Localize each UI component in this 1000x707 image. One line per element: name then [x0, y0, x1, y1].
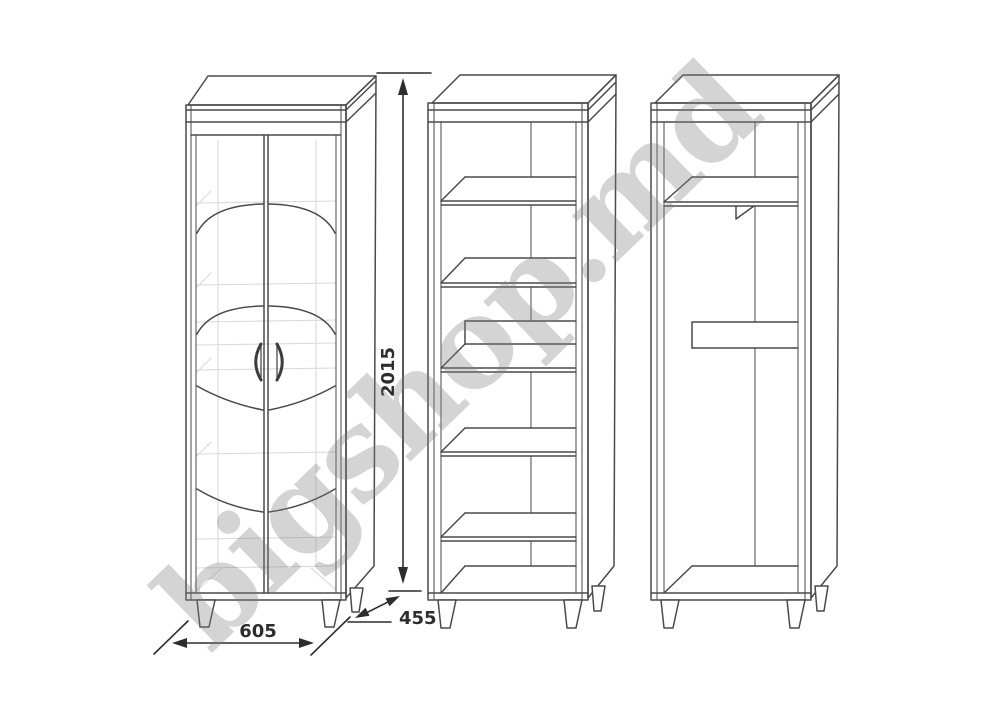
hangunit-side-face	[811, 75, 839, 598]
cabinet-top-face	[188, 76, 376, 105]
left-handle	[256, 344, 261, 380]
shelf-5	[441, 513, 576, 541]
bottom-panel	[664, 566, 798, 593]
rear-stiffener-band	[692, 322, 798, 348]
furniture-technical-drawing: 2015 455 605 bigshop.md	[0, 0, 1000, 707]
right-handle	[277, 344, 282, 380]
watermark-text: bigshop.md	[130, 36, 786, 677]
door-handles	[256, 344, 283, 380]
drawing-svg: 2015 455 605 bigshop.md	[0, 0, 1000, 707]
depth-label: 455	[399, 608, 437, 629]
shelfunit-top-face	[432, 75, 616, 103]
hanger-bracket-icon	[736, 206, 754, 219]
bottom-panel	[441, 566, 576, 593]
